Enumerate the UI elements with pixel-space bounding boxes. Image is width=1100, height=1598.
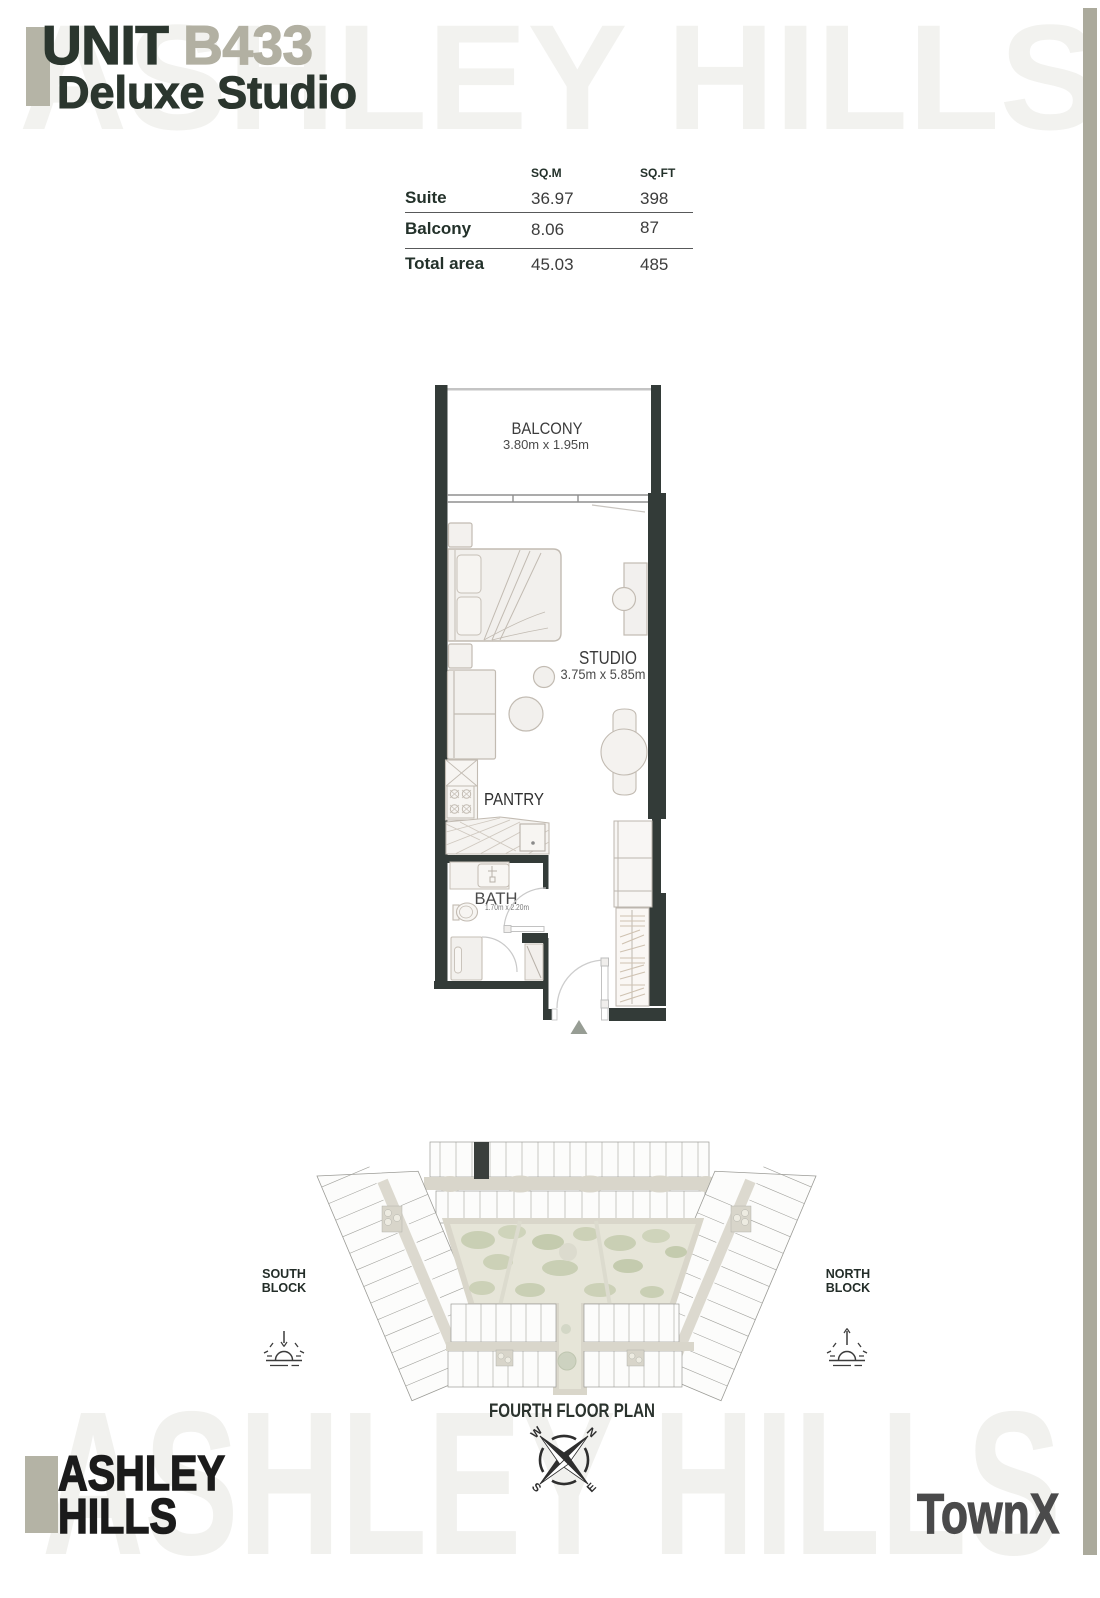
svg-text:BALCONY: BALCONY: [512, 419, 583, 438]
svg-text:STUDIO: STUDIO: [579, 648, 637, 668]
svg-text:3.75m x 5.85m: 3.75m x 5.85m: [561, 667, 646, 682]
svg-text:BLOCK: BLOCK: [826, 1281, 870, 1295]
svg-text:SOUTH: SOUTH: [262, 1267, 306, 1281]
svg-text:NORTH: NORTH: [826, 1267, 870, 1281]
svg-text:3.80m x 1.95m: 3.80m x 1.95m: [503, 437, 589, 452]
svg-text:PANTRY: PANTRY: [484, 789, 544, 809]
svg-text:BLOCK: BLOCK: [262, 1281, 306, 1295]
svg-text:1.70m x 2.20m: 1.70m x 2.20m: [485, 903, 529, 912]
svg-text:FOURTH FLOOR PLAN: FOURTH FLOOR PLAN: [489, 1401, 655, 1422]
